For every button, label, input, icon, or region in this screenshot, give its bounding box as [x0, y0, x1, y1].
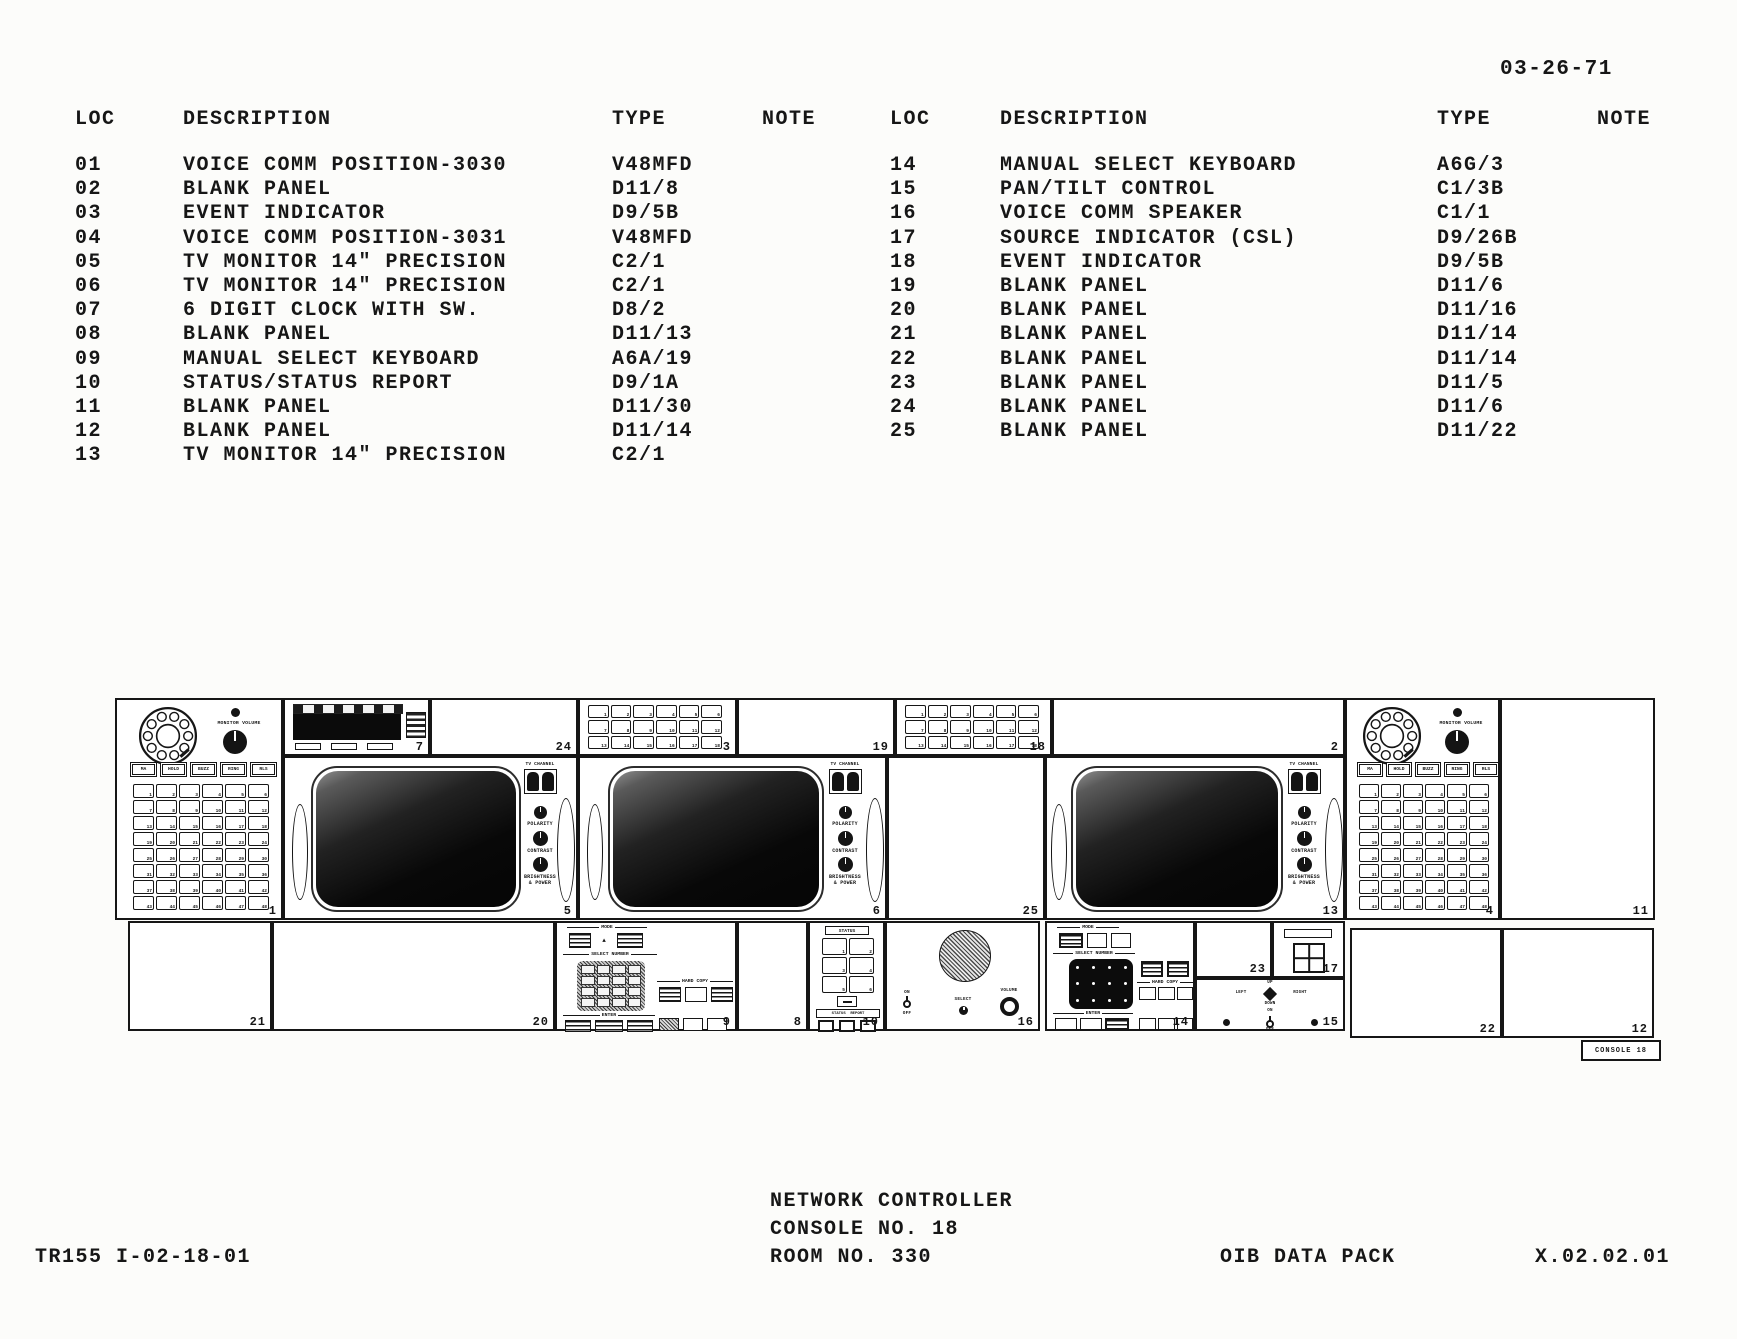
keypad-key: 17 — [1447, 816, 1467, 830]
keypad-key: 47 — [225, 896, 246, 910]
keypad-key: 27 — [179, 848, 200, 862]
keypad-key: 32 — [1381, 864, 1401, 878]
keypad-key: 46 — [1425, 896, 1445, 910]
comm-key: MA — [1357, 762, 1383, 777]
description-cell: STATUS/STATUS REPORT — [183, 372, 612, 396]
table-row: 10 STATUS/STATUS REPORT D9/1A — [75, 372, 816, 396]
line-key-grid: 1234567891011121314151617181920212223242… — [1359, 784, 1489, 910]
loc-cell: 05 — [75, 251, 183, 275]
keypad-key: 5 — [679, 705, 700, 718]
keypad-key: 3 — [633, 705, 654, 718]
hard-copy-key — [659, 987, 681, 1002]
keypad-key: 12 — [1469, 800, 1489, 814]
mode-key — [617, 933, 643, 948]
table-row: 01 VOICE COMM POSITION-3030 V48MFD — [75, 154, 816, 178]
grille-right — [1325, 798, 1343, 902]
keypad-key: 18 — [1469, 816, 1489, 830]
keypad-key: 43 — [1359, 896, 1379, 910]
table-row: 03 EVENT INDICATOR D9/5B — [75, 202, 816, 226]
tv-channel-button — [832, 772, 844, 791]
keypad-key: 33 — [179, 864, 200, 878]
tv-channel-buttons — [524, 769, 557, 794]
panel-11-blank: 11 — [1500, 698, 1655, 920]
keypad-key: 2 — [611, 705, 632, 718]
keypad-key: 13 — [133, 816, 154, 830]
loc-cell: 02 — [75, 178, 183, 202]
description-cell: VOICE COMM SPEAKER — [1000, 202, 1437, 226]
hard-copy-key — [1177, 987, 1193, 1000]
enter-key — [1080, 1018, 1102, 1030]
indicator-lamp — [231, 708, 240, 717]
type-cell: D11/14 — [1437, 348, 1597, 372]
keypad-key: 11 — [225, 800, 246, 814]
mode-label: MODE — [1057, 925, 1119, 930]
keypad-key — [612, 976, 626, 985]
panel-02-blank: 2 — [1052, 698, 1345, 756]
description-cell: BLANK PANEL — [183, 323, 612, 347]
keypad-key: 11 — [679, 720, 700, 733]
keypad-key — [1124, 999, 1127, 1002]
keypad-key: 3 — [950, 705, 971, 718]
contrast-label: CONTRAST — [519, 848, 561, 854]
panel-number: 4 — [1486, 904, 1494, 918]
console-title-line3: ROOM NO. 330 — [770, 1246, 932, 1269]
keypad-key: 37 — [1359, 880, 1379, 894]
panel-09-manual-select-keyboard: MODE ▲ SELECT NUMBER ENTER HARD COPY 9 — [555, 921, 737, 1031]
keypad-key: 4 — [1425, 784, 1445, 798]
description-cell: BLANK PANEL — [1000, 420, 1437, 444]
description-cell: BLANK PANEL — [183, 420, 612, 444]
keypad-key: 28 — [202, 848, 223, 862]
equipment-table-right-body: 14 MANUAL SELECT KEYBOARD A6G/3 15 PAN/T… — [890, 154, 1651, 444]
tv-channel-button — [527, 772, 539, 791]
comm-key-row: MA HOLD BUZZ RING RLS — [1357, 762, 1499, 777]
tv-channel-label: TV CHANNEL — [519, 762, 561, 768]
volume-knob — [223, 730, 247, 754]
loc-cell: 23 — [890, 372, 1000, 396]
keypad-key: 48 — [248, 896, 269, 910]
keypad-key: 23 — [225, 832, 246, 846]
status-key-grid: 123456 — [822, 938, 874, 993]
comm-key: RING — [220, 762, 247, 777]
on-off-toggle — [903, 1000, 911, 1008]
clock-set-window — [331, 743, 357, 750]
event-indicator-grid: 123456789101112131415161718 — [588, 705, 722, 749]
grille-right — [866, 798, 884, 902]
keypad-key: 3 — [822, 957, 847, 974]
keypad-key: 4 — [973, 705, 994, 718]
keypad-key: 43 — [133, 896, 154, 910]
description-cell: BLANK PANEL — [1000, 396, 1437, 420]
panel-12-blank: 12 — [1502, 928, 1654, 1038]
keypad-key: 26 — [156, 848, 177, 862]
type-cell: C1/3B — [1437, 178, 1597, 202]
type-cell: D11/16 — [1437, 299, 1597, 323]
table-row: 05 TV MONITOR 14" PRECISION C2/1 — [75, 251, 816, 275]
select-number-label: SELECT NUMBER — [563, 952, 657, 957]
keypad-key: 16 — [656, 736, 677, 749]
hard-copy-key — [1141, 961, 1163, 977]
volume-label: VOLUME — [991, 988, 1027, 994]
keypad-key — [1092, 999, 1095, 1002]
panel-10-status-panel: STATUS 123456 STATUS REPORT 10 — [808, 921, 885, 1031]
keypad-key — [612, 965, 626, 974]
table-row: 20 BLANK PANEL D11/16 — [890, 299, 1651, 323]
panel-03-event-indicator: 123456789101112131415161718 3 — [578, 698, 737, 756]
indicator-lamp — [1223, 1019, 1230, 1026]
tv-channel-buttons — [1288, 769, 1321, 794]
table-row: 22 BLANK PANEL D11/14 — [890, 348, 1651, 372]
loc-cell: 01 — [75, 154, 183, 178]
keypad-key: 19 — [133, 832, 154, 846]
table-row: 18 EVENT INDICATOR D9/5B — [890, 251, 1651, 275]
loc-cell: 16 — [890, 202, 1000, 226]
keypad-key: 29 — [1447, 848, 1467, 862]
keypad-key: 47 — [1447, 896, 1467, 910]
keypad-key: 38 — [1381, 880, 1401, 894]
select-label: SELECT — [945, 997, 981, 1003]
line-key-grid: 1234567891011121314151617181920212223242… — [133, 784, 269, 910]
keypad-key: 30 — [1469, 848, 1489, 862]
keypad-key: 2 — [928, 705, 949, 718]
panel-number: 12 — [1632, 1022, 1648, 1036]
keypad-key — [628, 987, 642, 996]
keypad-key: 45 — [179, 896, 200, 910]
keypad-key: 41 — [225, 880, 246, 894]
table-header: LOC DESCRIPTION TYPE NOTE — [890, 108, 1651, 132]
grille-left — [587, 804, 603, 900]
table-row: 02 BLANK PANEL D11/8 — [75, 178, 816, 202]
loc-cell: 24 — [890, 396, 1000, 420]
table-row: 19 BLANK PANEL D11/6 — [890, 275, 1651, 299]
table-row: 17 SOURCE INDICATOR (CSL) D9/26B — [890, 227, 1651, 251]
keypad-key: 30 — [248, 848, 269, 862]
right-label: RIGHT — [1287, 991, 1313, 996]
table-row: 24 BLANK PANEL D11/6 — [890, 396, 1651, 420]
keypad-key: 10 — [656, 720, 677, 733]
table-row: 16 VOICE COMM SPEAKER C1/1 — [890, 202, 1651, 226]
description-cell: TV MONITOR 14" PRECISION — [183, 275, 612, 299]
keypad-key — [1108, 982, 1111, 985]
keypad-key: 36 — [248, 864, 269, 878]
keypad-key: 21 — [179, 832, 200, 846]
keypad-key: 31 — [1359, 864, 1379, 878]
type-cell: V48MFD — [612, 154, 762, 178]
tv-channel-label: TV CHANNEL — [824, 762, 866, 768]
clock-set-window — [367, 743, 393, 750]
brightness-power-label: BRIGHTNESS & POWER — [828, 874, 862, 887]
brightness-power-knob — [533, 857, 548, 872]
crt-bezel — [311, 766, 521, 912]
hard-copy-key — [1167, 961, 1189, 977]
keypad-key: 13 — [1359, 816, 1379, 830]
clock-switch — [406, 712, 426, 738]
indicator-lamp — [1311, 1019, 1318, 1026]
keypad-key — [1076, 999, 1079, 1002]
source-indicator-window — [1293, 943, 1325, 973]
keypad-key: 5 — [225, 784, 246, 798]
keypad-key: 10 — [202, 800, 223, 814]
table-row: 08 BLANK PANEL D11/13 — [75, 323, 816, 347]
description-cell: TV MONITOR 14" PRECISION — [183, 444, 612, 468]
lamp-test-key — [837, 996, 857, 1007]
table-row: 13 TV MONITOR 14" PRECISION C2/1 — [75, 444, 816, 468]
keypad-key: 16 — [202, 816, 223, 830]
panel-number: 21 — [250, 1015, 266, 1029]
keypad-key: 13 — [588, 736, 609, 749]
loc-cell: 10 — [75, 372, 183, 396]
keypad-key: 10 — [1425, 800, 1445, 814]
panel-number: 9 — [723, 1015, 731, 1029]
keypad-key: 3 — [179, 784, 200, 798]
hard-copy-label: HARD COPY — [1137, 980, 1193, 985]
keypad-key — [612, 998, 626, 1007]
select-knob — [959, 1006, 968, 1015]
grille-left — [1051, 804, 1067, 900]
col-header-loc: LOC — [890, 108, 1000, 132]
keypad-key: 17 — [679, 736, 700, 749]
keypad-key: 40 — [1425, 880, 1445, 894]
panel-18-event-indicator: 123456789101112131415161718 18 — [895, 698, 1052, 756]
panel-21-blank: 21 — [128, 921, 272, 1031]
mode-key — [1111, 933, 1131, 948]
keypad-key: 5 — [996, 705, 1017, 718]
volume-knob — [1445, 730, 1469, 754]
type-cell: D9/1A — [612, 372, 762, 396]
report-key — [818, 1020, 834, 1032]
loc-cell: 12 — [75, 420, 183, 444]
crt-screen — [1076, 771, 1278, 907]
type-cell: A6G/3 — [1437, 154, 1597, 178]
col-header-note: NOTE — [1597, 108, 1651, 132]
col-header-note: NOTE — [762, 108, 816, 132]
panel-20-blank: 20 — [272, 921, 555, 1031]
keypad-key: 6 — [1469, 784, 1489, 798]
keypad-key: 12 — [1018, 720, 1039, 733]
loc-cell: 04 — [75, 227, 183, 251]
keypad-key: 36 — [1469, 864, 1489, 878]
keypad-key: 4 — [849, 957, 874, 974]
mode-key — [1059, 933, 1083, 948]
function-key — [659, 1018, 679, 1031]
col-header-description: DESCRIPTION — [183, 108, 612, 132]
contrast-knob — [533, 831, 548, 846]
keypad-key: 7 — [133, 800, 154, 814]
on-off-toggle — [1266, 1020, 1274, 1028]
keypad-key: 6 — [1018, 705, 1039, 718]
panel-number: 2 — [1331, 740, 1339, 754]
loc-cell: 08 — [75, 323, 183, 347]
tv-channel-button — [1291, 772, 1303, 791]
panel-number: 8 — [794, 1015, 802, 1029]
keypad-key: 7 — [1359, 800, 1379, 814]
keypad-key: 35 — [1447, 864, 1467, 878]
brightness-power-knob — [1297, 857, 1312, 872]
keypad-key: 37 — [133, 880, 154, 894]
pan-tilt-stick — [1263, 987, 1277, 1001]
type-cell: D8/2 — [612, 299, 762, 323]
panel-04-voice-comm: MONITOR VOLUME MA HOLD BUZZ RING RLS 123… — [1345, 698, 1500, 920]
keypad-key: 6 — [849, 976, 874, 993]
hard-copy-key — [1158, 987, 1175, 1000]
type-cell: D11/14 — [1437, 323, 1597, 347]
type-cell: C2/1 — [612, 251, 762, 275]
keypad-key: 5 — [822, 976, 847, 993]
keypad-key: 1 — [588, 705, 609, 718]
panel-number: 20 — [533, 1015, 549, 1029]
panel-number: 22 — [1480, 1022, 1496, 1036]
enter-label: ENTER — [563, 1013, 655, 1018]
panel-number: 14 — [1173, 1015, 1189, 1029]
keypad-key: 25 — [133, 848, 154, 862]
loc-cell: 13 — [75, 444, 183, 468]
up-label: UP — [1259, 981, 1281, 986]
keypad-key: 10 — [973, 720, 994, 733]
description-cell: BLANK PANEL — [183, 396, 612, 420]
hard-copy-key — [685, 987, 707, 1002]
keypad-key: 16 — [973, 736, 994, 749]
keypad-key: 20 — [1381, 832, 1401, 846]
keypad-key: 7 — [905, 720, 926, 733]
keypad-key: 25 — [1359, 848, 1379, 862]
description-cell: MANUAL SELECT KEYBOARD — [183, 348, 612, 372]
keypad-key — [628, 976, 642, 985]
keypad-key: 12 — [248, 800, 269, 814]
table-row: 15 PAN/TILT CONTROL C1/3B — [890, 178, 1651, 202]
comm-key: MA — [130, 762, 157, 777]
description-cell: PAN/TILT CONTROL — [1000, 178, 1437, 202]
keypad-key: 1 — [822, 938, 847, 955]
type-cell: C2/1 — [612, 275, 762, 299]
panel-07-digital-clock: 7 — [283, 698, 430, 756]
rotary-dial-icon — [1361, 705, 1423, 767]
left-label: LEFT — [1229, 991, 1253, 996]
keypad-key: 28 — [1425, 848, 1445, 862]
keypad-key — [597, 987, 611, 996]
keypad-key: 23 — [1447, 832, 1467, 846]
col-header-description: DESCRIPTION — [1000, 108, 1437, 132]
keypad-key — [1076, 982, 1079, 985]
keypad-key — [1092, 982, 1095, 985]
panel-number: 1 — [269, 904, 277, 918]
off-label: OFF — [895, 1011, 919, 1017]
type-cell: D11/30 — [612, 396, 762, 420]
keypad-key: 41 — [1447, 880, 1467, 894]
keypad-key — [581, 987, 595, 996]
panel-number: 17 — [1323, 962, 1339, 976]
console-layout-diagram: MONITOR VOLUME MA HOLD BUZZ RING RLS 123… — [115, 698, 1660, 1068]
loc-cell: 18 — [890, 251, 1000, 275]
keypad-key: 29 — [225, 848, 246, 862]
keypad-key — [581, 965, 595, 974]
description-cell: TV MONITOR 14" PRECISION — [183, 251, 612, 275]
keypad-key: 11 — [996, 720, 1017, 733]
loc-cell: 17 — [890, 227, 1000, 251]
comm-key: HOLD — [160, 762, 187, 777]
keypad-key — [1108, 999, 1111, 1002]
panel-05-tv-monitor: TV CHANNEL POLARITY CONTRAST BRIGHTNESS … — [283, 756, 578, 920]
keypad-key: 16 — [1425, 816, 1445, 830]
loc-cell: 14 — [890, 154, 1000, 178]
type-cell: D11/13 — [612, 323, 762, 347]
clock-display — [293, 714, 401, 740]
loc-cell: 09 — [75, 348, 183, 372]
panel-number: 11 — [1633, 904, 1649, 918]
on-label: ON — [895, 990, 919, 996]
loc-cell: 22 — [890, 348, 1000, 372]
type-cell: D9/26B — [1437, 227, 1597, 251]
brightness-power-label: BRIGHTNESS & POWER — [523, 874, 557, 887]
hard-copy-label: HARD COPY — [657, 979, 733, 984]
tv-channel-button — [542, 772, 554, 791]
type-cell: D9/5B — [1437, 251, 1597, 275]
loc-cell: 25 — [890, 420, 1000, 444]
keypad-key: 33 — [1403, 864, 1423, 878]
keypad-key: 46 — [202, 896, 223, 910]
keypad-key: 14 — [928, 736, 949, 749]
keypad-key: 2 — [156, 784, 177, 798]
description-cell: BLANK PANEL — [1000, 323, 1437, 347]
keypad-key: 18 — [248, 816, 269, 830]
contrast-knob — [1297, 831, 1312, 846]
source-readout-bar — [1284, 929, 1332, 938]
grille-left — [292, 804, 308, 900]
keypad-key: 4 — [656, 705, 677, 718]
console-title-line2: CONSOLE NO. 18 — [770, 1218, 959, 1241]
keypad-key: 12 — [701, 720, 722, 733]
keypad-key: 17 — [996, 736, 1017, 749]
keypad-key — [628, 998, 642, 1007]
panel-16-voice-comm-speaker: ON OFF SELECT VOLUME 16 — [885, 921, 1040, 1031]
enter-key — [595, 1020, 623, 1032]
keypad-key: 27 — [1403, 848, 1423, 862]
table-row: 21 BLANK PANEL D11/14 — [890, 323, 1651, 347]
table-row: 14 MANUAL SELECT KEYBOARD A6G/3 — [890, 154, 1651, 178]
keypad-key: 4 — [202, 784, 223, 798]
keypad-key: 1 — [133, 784, 154, 798]
on-label: ON — [1259, 1009, 1281, 1014]
table-row: 25 BLANK PANEL D11/22 — [890, 420, 1651, 444]
description-cell: MANUAL SELECT KEYBOARD — [1000, 154, 1437, 178]
contrast-label: CONTRAST — [824, 848, 866, 854]
description-cell: BLANK PANEL — [1000, 372, 1437, 396]
sheet-number: X.02.02.01 — [1535, 1246, 1670, 1269]
mode-key — [569, 933, 591, 948]
keypad-key: 17 — [225, 816, 246, 830]
speaker-icon — [939, 930, 991, 982]
comm-key: RING — [1444, 762, 1470, 777]
polarity-label: POLARITY — [1283, 821, 1325, 827]
keypad-key — [581, 998, 595, 1007]
type-cell: A6A/19 — [612, 348, 762, 372]
panel-01-voice-comm: MONITOR VOLUME MA HOLD BUZZ RING RLS 123… — [115, 698, 283, 920]
keypad-key — [1124, 966, 1127, 969]
panel-08-blank: 8 — [737, 921, 808, 1031]
crt-bezel — [1071, 766, 1283, 912]
keypad-key: 3 — [1403, 784, 1423, 798]
panel-number: 15 — [1323, 1015, 1339, 1029]
keypad-key: 35 — [225, 864, 246, 878]
document-date: 03-26-71 — [1500, 58, 1613, 81]
description-cell: BLANK PANEL — [183, 178, 612, 202]
loc-cell: 11 — [75, 396, 183, 420]
enter-label: ENTER — [1053, 1011, 1133, 1016]
enter-key — [1105, 1018, 1129, 1030]
panel-24-blank: 24 — [430, 698, 578, 756]
description-cell: 6 DIGIT CLOCK WITH SW. — [183, 299, 612, 323]
keypad-key: 24 — [248, 832, 269, 846]
keypad-key: 11 — [1447, 800, 1467, 814]
